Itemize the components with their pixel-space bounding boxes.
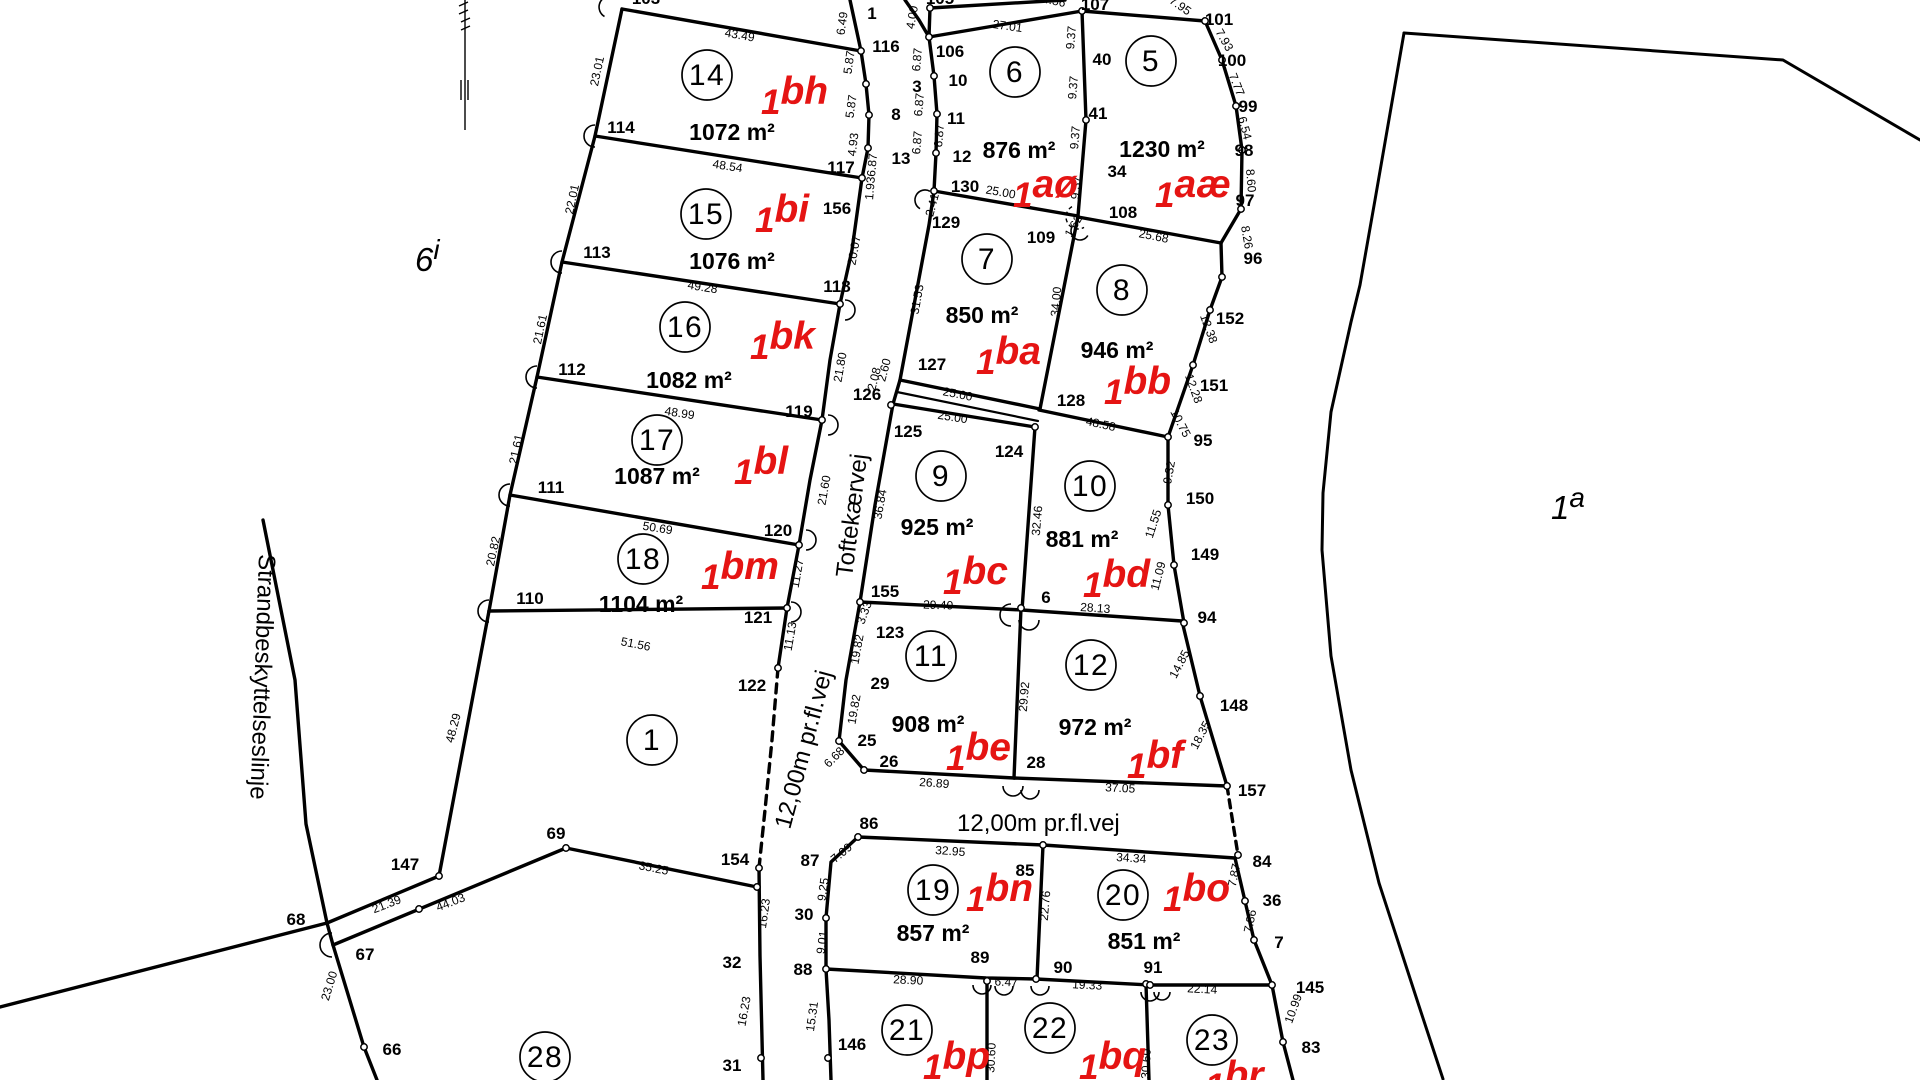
svg-text:67: 67: [356, 945, 375, 964]
svg-text:41: 41: [1089, 104, 1108, 123]
svg-text:9.37: 9.37: [1067, 125, 1083, 150]
svg-text:154: 154: [721, 850, 750, 869]
svg-text:117: 117: [827, 158, 854, 177]
svg-text:6.87: 6.87: [931, 123, 947, 148]
svg-text:111: 111: [538, 478, 565, 497]
svg-text:94: 94: [1198, 608, 1217, 627]
svg-text:851 m²: 851 m²: [1108, 928, 1181, 954]
svg-text:850 m²: 850 m²: [946, 302, 1019, 328]
svg-text:110: 110: [516, 589, 543, 608]
svg-text:152: 152: [1216, 309, 1244, 328]
svg-text:150: 150: [1186, 489, 1214, 508]
svg-text:18: 18: [625, 543, 661, 576]
svg-text:1: 1: [643, 724, 661, 757]
svg-text:98: 98: [1235, 141, 1254, 160]
svg-text:99: 99: [1239, 97, 1258, 116]
svg-text:925 m²: 925 m²: [901, 514, 974, 540]
svg-text:29.92: 29.92: [1016, 681, 1033, 712]
svg-text:146: 146: [838, 1035, 866, 1054]
svg-text:96: 96: [1244, 249, 1263, 268]
svg-text:145: 145: [1296, 978, 1324, 997]
svg-text:106: 106: [936, 42, 964, 61]
svg-text:12: 12: [953, 147, 972, 166]
svg-text:12,00m pr.fl.vej: 12,00m pr.fl.vej: [957, 810, 1120, 837]
svg-text:1230 m²: 1230 m²: [1119, 136, 1205, 162]
svg-text:14: 14: [689, 59, 725, 92]
svg-text:105: 105: [926, 0, 954, 8]
svg-text:114: 114: [607, 118, 635, 137]
svg-text:8: 8: [1113, 274, 1131, 307]
svg-text:1104 m²: 1104 m²: [599, 591, 684, 617]
svg-text:26: 26: [880, 752, 899, 771]
svg-text:1087 m²: 1087 m²: [614, 463, 700, 489]
svg-text:8.60: 8.60: [1243, 168, 1259, 193]
svg-text:12: 12: [1073, 649, 1109, 682]
svg-text:7: 7: [1274, 933, 1283, 952]
svg-text:40: 40: [1093, 50, 1112, 69]
svg-text:91: 91: [1144, 958, 1163, 977]
svg-text:68: 68: [287, 910, 306, 929]
svg-text:6.47: 6.47: [994, 974, 1018, 989]
svg-text:11: 11: [914, 640, 948, 673]
svg-text:22.14: 22.14: [1187, 981, 1218, 997]
svg-text:127: 127: [918, 355, 946, 374]
svg-text:123: 123: [876, 623, 904, 642]
svg-text:34.00: 34.00: [1048, 286, 1065, 317]
svg-text:95: 95: [1194, 431, 1213, 450]
svg-text:147: 147: [391, 855, 419, 874]
svg-text:31: 31: [723, 1056, 742, 1075]
svg-text:156: 156: [823, 199, 851, 218]
svg-text:32: 32: [723, 953, 742, 972]
svg-text:36: 36: [1263, 891, 1282, 910]
svg-text:1082 m²: 1082 m²: [646, 367, 732, 393]
svg-text:32.46: 32.46: [1029, 505, 1046, 536]
svg-text:10: 10: [949, 71, 968, 90]
svg-text:6: 6: [1041, 588, 1050, 607]
svg-text:10: 10: [1072, 470, 1108, 503]
svg-text:22: 22: [1032, 1012, 1068, 1045]
svg-text:1072 m²: 1072 m²: [689, 119, 775, 145]
svg-text:29: 29: [871, 674, 890, 693]
svg-text:84: 84: [1253, 852, 1272, 871]
svg-text:87: 87: [801, 851, 820, 870]
svg-text:23: 23: [1194, 1024, 1230, 1057]
svg-text:88: 88: [794, 960, 813, 979]
svg-text:109: 109: [1027, 228, 1055, 247]
svg-text:148: 148: [1220, 696, 1248, 715]
svg-text:881 m²: 881 m²: [1046, 526, 1119, 552]
svg-text:151: 151: [1200, 376, 1228, 395]
svg-text:9.37: 9.37: [1063, 25, 1079, 50]
svg-text:7: 7: [978, 243, 996, 276]
svg-text:83: 83: [1302, 1038, 1321, 1057]
svg-text:125: 125: [894, 422, 922, 441]
svg-text:6.87: 6.87: [911, 92, 927, 117]
svg-text:30: 30: [795, 905, 814, 924]
svg-text:17: 17: [639, 424, 675, 457]
svg-text:101: 101: [1205, 10, 1233, 29]
svg-text:157: 157: [1238, 781, 1266, 800]
svg-text:128: 128: [1057, 391, 1085, 410]
svg-text:113: 113: [583, 243, 610, 262]
svg-text:972 m²: 972 m²: [1059, 714, 1132, 740]
svg-text:32.95: 32.95: [935, 843, 966, 859]
svg-text:25: 25: [858, 731, 877, 750]
svg-text:118: 118: [823, 277, 850, 296]
svg-text:8: 8: [891, 105, 900, 124]
svg-text:124: 124: [995, 442, 1024, 461]
svg-text:100: 100: [1218, 51, 1246, 70]
svg-text:122: 122: [738, 676, 766, 695]
svg-text:107: 107: [1081, 0, 1109, 14]
svg-text:1: 1: [867, 4, 876, 23]
svg-text:908 m²: 908 m²: [892, 711, 965, 737]
svg-text:13: 13: [892, 149, 911, 168]
svg-text:112: 112: [558, 360, 585, 379]
svg-text:34: 34: [1108, 162, 1127, 181]
svg-text:108: 108: [1109, 203, 1137, 222]
svg-text:120: 120: [764, 521, 792, 540]
svg-text:69: 69: [547, 824, 566, 843]
svg-text:19.33: 19.33: [1072, 977, 1103, 993]
svg-text:4.93: 4.93: [845, 132, 862, 157]
svg-text:857 m²: 857 m²: [897, 920, 970, 946]
svg-text:28.90: 28.90: [893, 972, 924, 988]
svg-text:28: 28: [527, 1041, 563, 1074]
svg-text:6: 6: [1006, 56, 1024, 89]
svg-text:22.76: 22.76: [1037, 890, 1054, 921]
svg-text:34.34: 34.34: [1116, 850, 1147, 866]
svg-text:876 m²: 876 m²: [983, 137, 1056, 163]
svg-text:90: 90: [1054, 958, 1073, 977]
svg-text:1076 m²: 1076 m²: [689, 248, 775, 274]
svg-text:66: 66: [383, 1040, 402, 1059]
svg-text:11: 11: [947, 109, 965, 128]
svg-text:121: 121: [744, 608, 772, 627]
svg-text:89: 89: [971, 948, 990, 967]
svg-text:28: 28: [1027, 753, 1046, 772]
svg-text:130: 130: [951, 177, 979, 196]
svg-text:16: 16: [667, 311, 703, 344]
svg-text:149: 149: [1191, 545, 1219, 564]
svg-text:6.87: 6.87: [909, 47, 925, 72]
svg-text:9: 9: [932, 460, 950, 493]
svg-text:15: 15: [688, 198, 724, 231]
svg-text:119: 119: [785, 402, 812, 421]
svg-text:5: 5: [1142, 45, 1160, 78]
svg-text:155: 155: [871, 582, 899, 601]
svg-text:9.37: 9.37: [1065, 75, 1081, 100]
svg-text:97: 97: [1236, 191, 1255, 210]
svg-text:21: 21: [889, 1014, 925, 1047]
svg-text:19: 19: [915, 874, 951, 907]
svg-text:116: 116: [872, 37, 899, 56]
svg-text:6.87: 6.87: [909, 130, 925, 155]
svg-text:20: 20: [1105, 879, 1141, 912]
svg-text:86: 86: [860, 814, 879, 833]
svg-text:103: 103: [632, 0, 660, 8]
